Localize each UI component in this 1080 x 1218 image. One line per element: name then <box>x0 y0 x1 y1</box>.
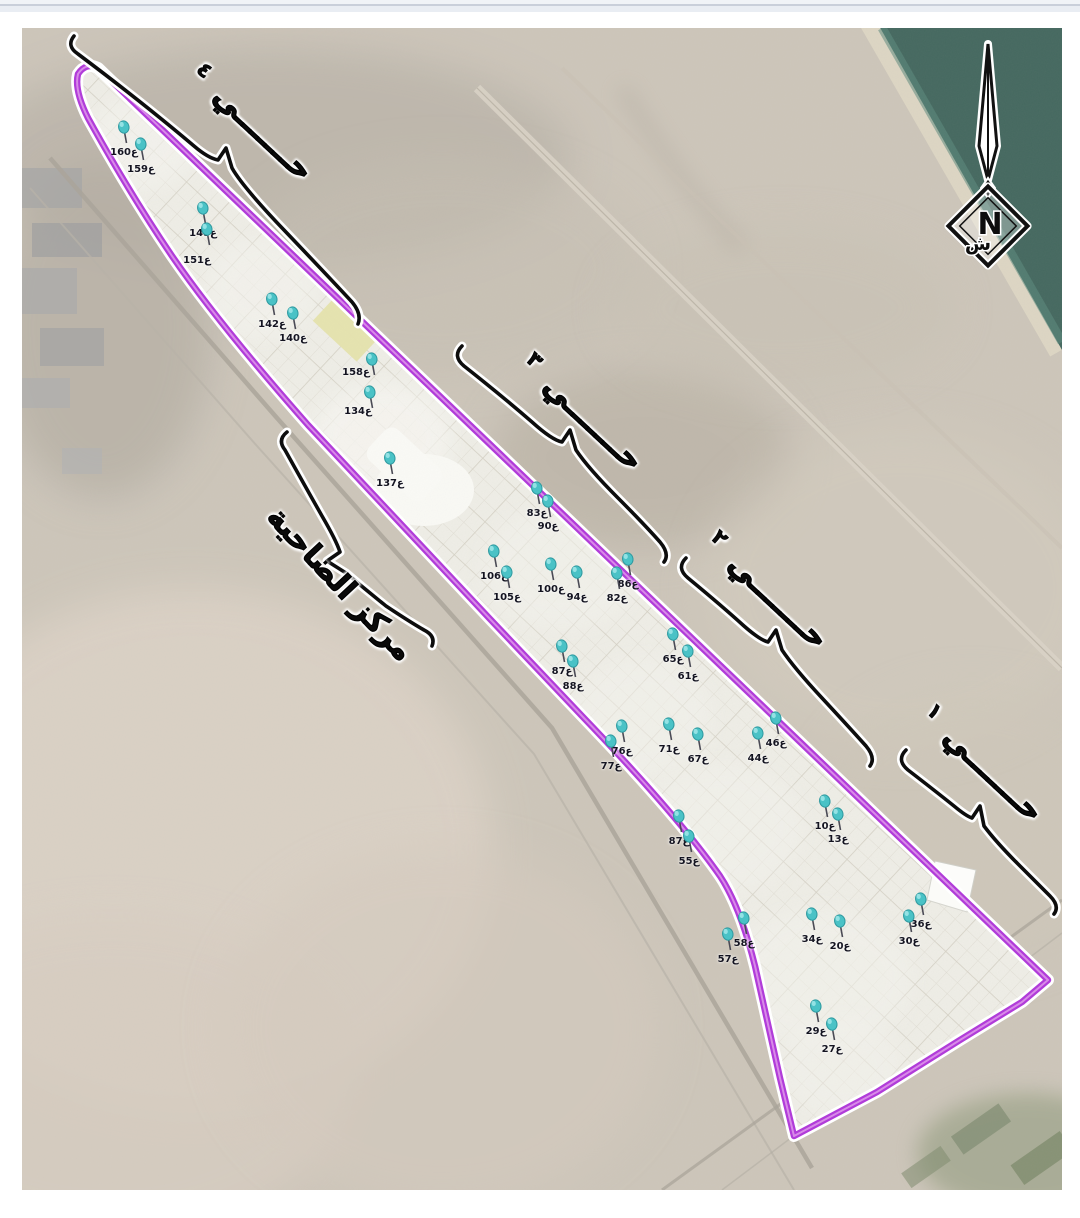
pin-label: 137ع <box>364 478 416 489</box>
pin-label: 67ع <box>672 754 724 765</box>
pushpin-icon <box>542 557 560 583</box>
pushpin-icon <box>498 565 516 591</box>
pushpin-icon <box>602 734 620 760</box>
pushpin-icon <box>381 451 399 477</box>
pushpin-icon <box>689 727 707 753</box>
pushpin-icon <box>829 807 847 833</box>
pin-label: 55ع <box>663 856 715 867</box>
pin-label: 20ع <box>814 941 866 952</box>
pushpin-icon <box>132 137 150 163</box>
pin-label: 82ع <box>591 593 643 604</box>
pushpin-icon <box>660 717 678 743</box>
pin-label: 57ع <box>702 954 754 965</box>
pushpin-icon <box>735 911 753 937</box>
pin-label: 44ع <box>732 753 784 764</box>
pushpin-icon <box>749 726 767 752</box>
window-top-band <box>0 0 1080 12</box>
pushpin-icon <box>831 914 849 940</box>
pin-label: 90ع <box>522 521 574 532</box>
pin-label: 140ع <box>267 333 319 344</box>
pin-label: 30ع <box>883 936 935 947</box>
pushpin-icon <box>263 292 281 318</box>
pushpin-icon <box>568 565 586 591</box>
pin-label: 13ع <box>812 834 864 845</box>
page: { "labels": { "district_center": "مركز ا… <box>0 0 1080 1218</box>
label-overlay: حـــــــي ١ حـــــــي ٢ حـــــــي ٣ حـــ… <box>22 28 1062 1190</box>
pin-label: 159ع <box>115 164 167 175</box>
pushpin-icon <box>719 927 737 953</box>
pushpin-icon <box>564 654 582 680</box>
pushpin-icon <box>680 829 698 855</box>
pushpin-icon <box>539 494 557 520</box>
satellite-map: N ش حـــــــي ١ حـــــــي ٢ حـــــــي ٣ … <box>22 28 1062 1190</box>
pin-label: 77ع <box>585 761 637 772</box>
pushpin-icon <box>803 907 821 933</box>
pin-label: 61ع <box>662 671 714 682</box>
pin-label: 134ع <box>332 406 384 417</box>
pushpin-icon <box>284 306 302 332</box>
pin-layer: 160ع159ع148ع151ع142ع140ع158ع134ع137ع83ع9… <box>22 28 1062 1190</box>
pushpin-icon <box>115 120 133 146</box>
pushpin-icon <box>823 1017 841 1043</box>
pushpin-icon <box>198 222 216 248</box>
pin-label: 151ع <box>171 255 223 266</box>
pushpin-icon <box>679 644 697 670</box>
pin-label: 27ع <box>806 1044 858 1055</box>
pushpin-icon <box>900 909 918 935</box>
pin-label: 158ع <box>330 367 382 378</box>
pushpin-icon <box>767 711 785 737</box>
pin-label: 88ع <box>547 681 599 692</box>
pushpin-icon <box>608 566 626 592</box>
